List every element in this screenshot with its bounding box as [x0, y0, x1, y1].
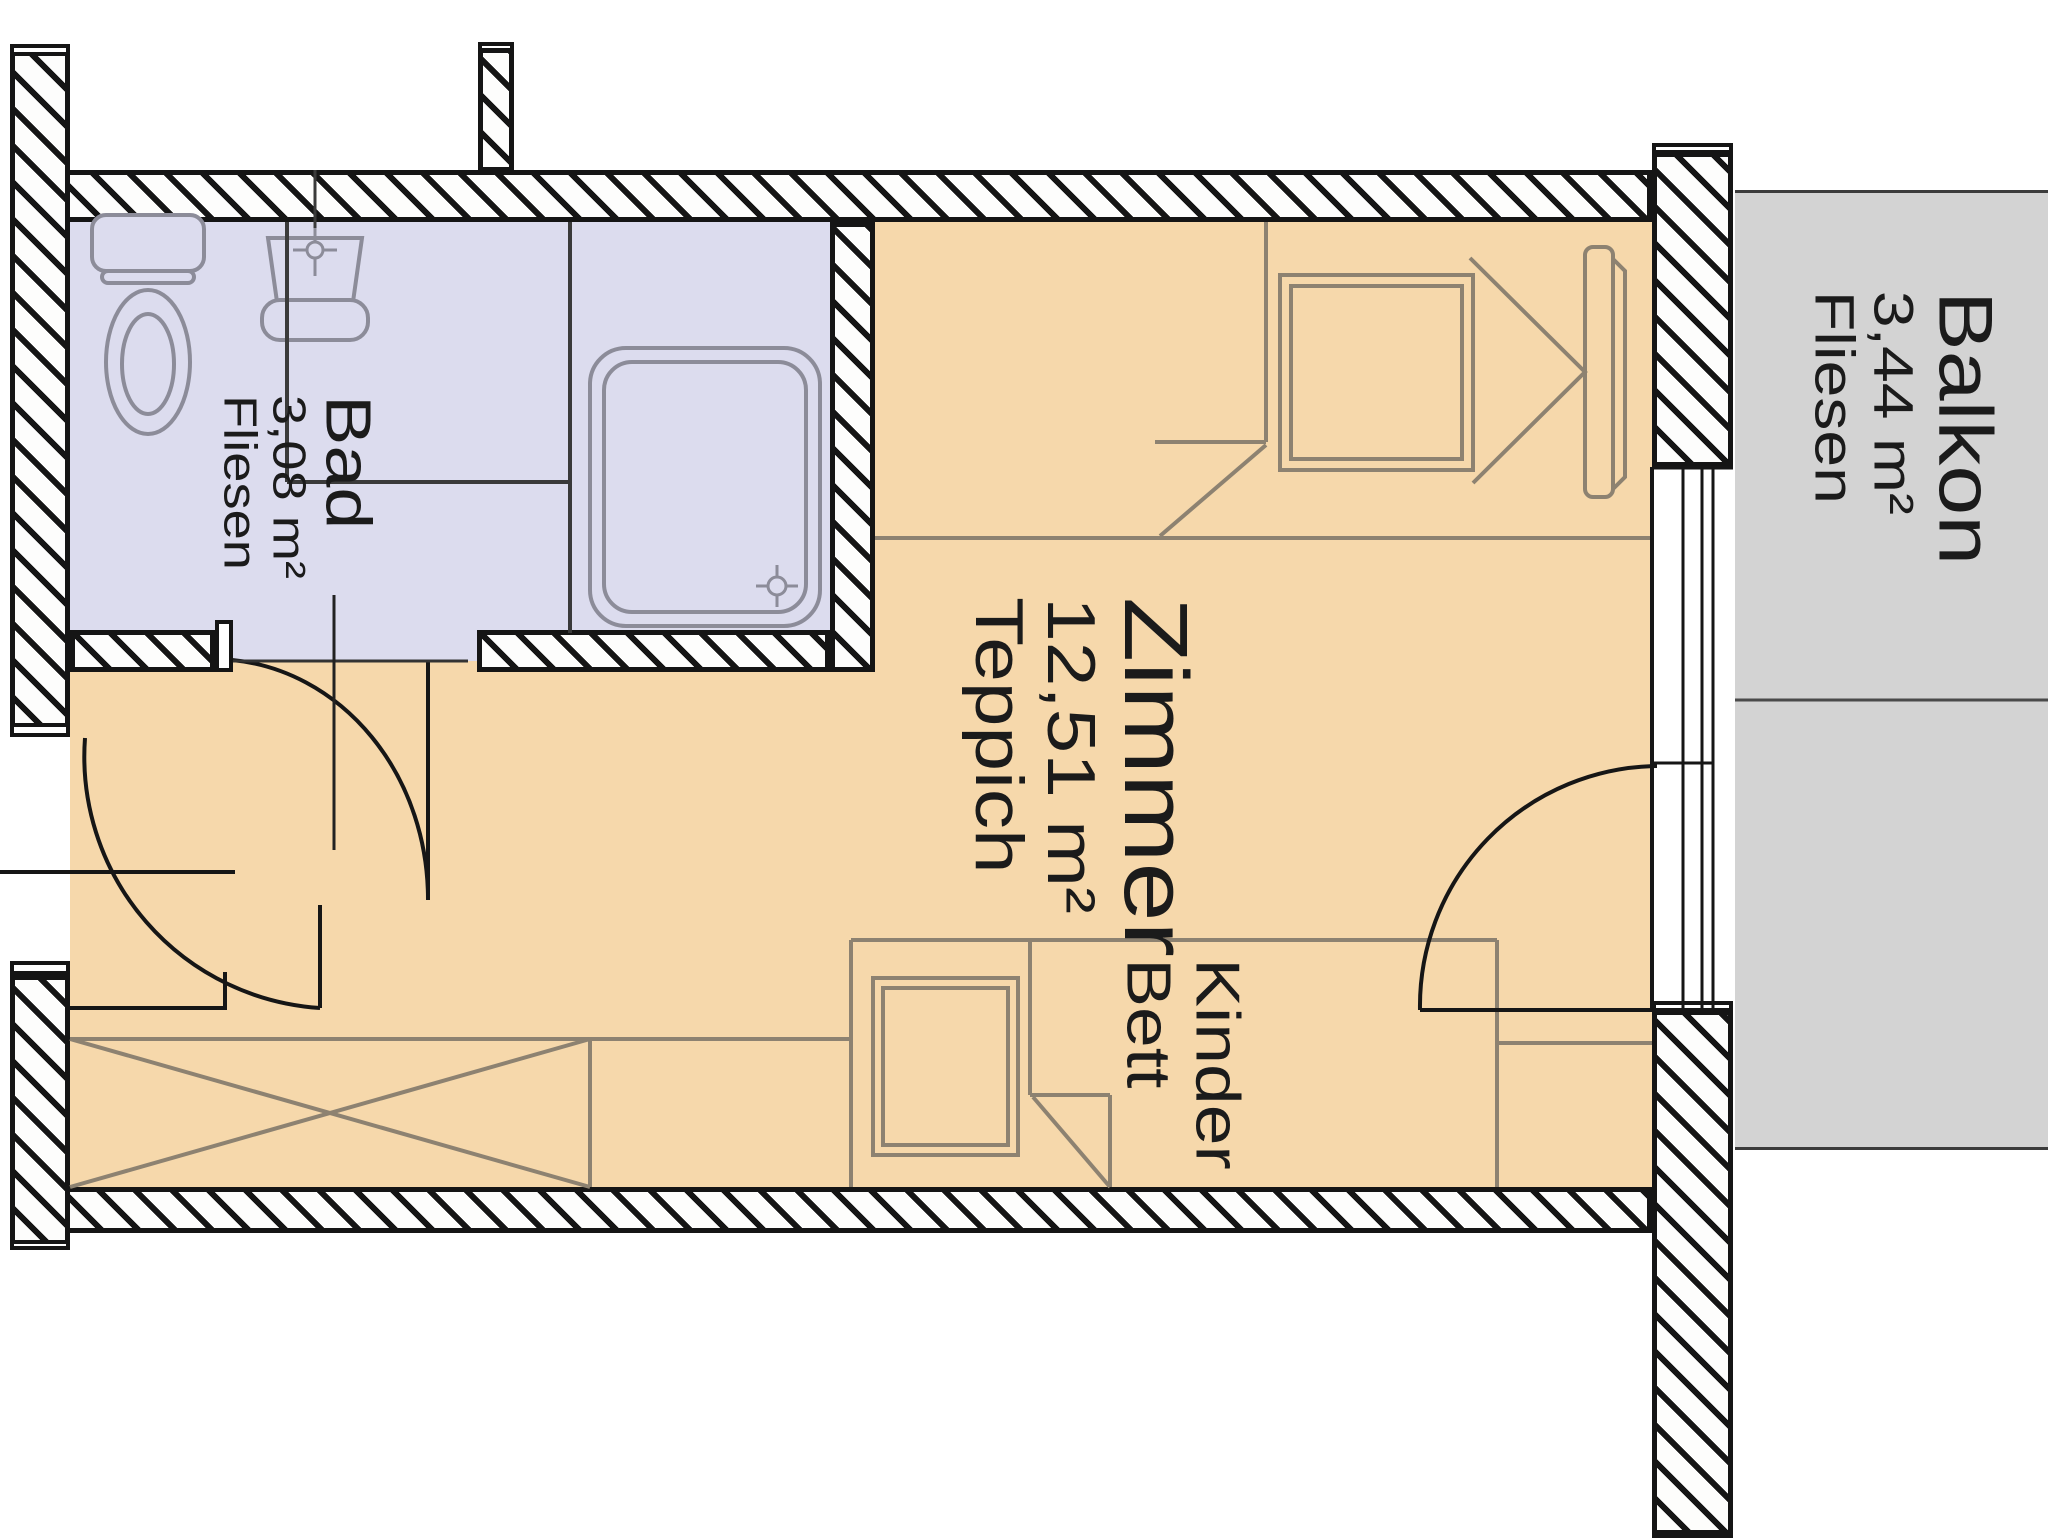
room-area: 12,51 m²: [1034, 597, 1106, 957]
furniture-label-line: Kinder: [1182, 958, 1251, 1169]
entrance-leaf-corner: [70, 972, 225, 1008]
room-area: 3,08 m²: [265, 395, 314, 579]
toilet-tank: [92, 215, 204, 271]
room-floor-material: Fliesen: [1805, 291, 1864, 565]
bed-blanket-chevron: [1470, 258, 1585, 483]
floor-plan: Bad 3,08 m² Fliesen Zimmer 12,51 m² Tepp…: [0, 0, 2048, 1538]
sink-apron: [262, 300, 368, 340]
bed-fold-diagonal: [1160, 445, 1266, 536]
room-floor-material: Teppich: [962, 597, 1034, 957]
room-area: 3,44 m²: [1865, 291, 1924, 565]
toilet-tank-lip: [102, 271, 194, 283]
bed-pillow: [1280, 275, 1473, 470]
child-bed-pillow-inner: [883, 988, 1008, 1145]
label-balkon: Balkon 3,44 m² Fliesen: [1805, 291, 2004, 565]
room-floor-material: Fliesen: [216, 395, 265, 579]
label-zimmer: Zimmer 12,51 m² Teppich: [962, 597, 1202, 957]
label-kinder-bett: Kinder Bett: [1113, 958, 1252, 1169]
balcony-door-arc: [1420, 766, 1657, 1010]
faucet-icon: [307, 242, 323, 258]
shower-drain-icon: [768, 577, 786, 595]
bed-headboard: [1585, 247, 1613, 497]
bathroom-door-arc: [232, 660, 428, 900]
room-name: Balkon: [1924, 291, 2005, 565]
label-bad: Bad 3,08 m² Fliesen: [216, 395, 381, 579]
room-name: Bad: [314, 395, 382, 579]
room-name: Zimmer: [1106, 597, 1201, 957]
child-bed-fold-diagonal: [1033, 1097, 1110, 1187]
furniture-label-line: Bett: [1113, 958, 1182, 1169]
child-bed-pillow: [873, 978, 1018, 1155]
bed-pillow-inner: [1291, 286, 1462, 459]
